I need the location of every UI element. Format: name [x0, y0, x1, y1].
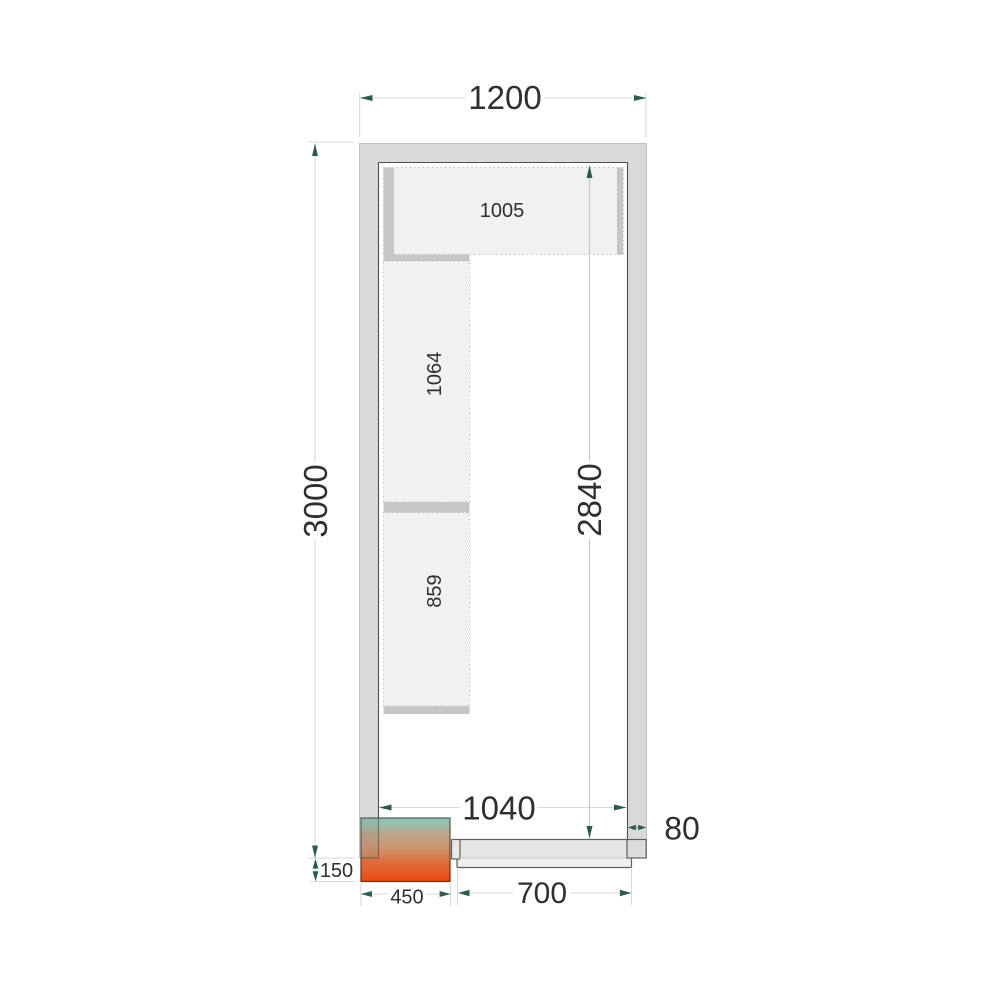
- svg-text:1200: 1200: [468, 79, 541, 116]
- svg-text:1064: 1064: [424, 352, 446, 397]
- svg-text:700: 700: [517, 877, 567, 910]
- svg-text:2840: 2840: [571, 463, 608, 536]
- svg-text:1040: 1040: [462, 790, 535, 827]
- svg-text:1005: 1005: [480, 200, 525, 222]
- svg-text:859: 859: [424, 574, 446, 607]
- svg-text:450: 450: [390, 887, 423, 909]
- svg-text:3000: 3000: [297, 464, 334, 537]
- svg-text:150: 150: [320, 860, 353, 882]
- svg-text:80: 80: [664, 811, 700, 847]
